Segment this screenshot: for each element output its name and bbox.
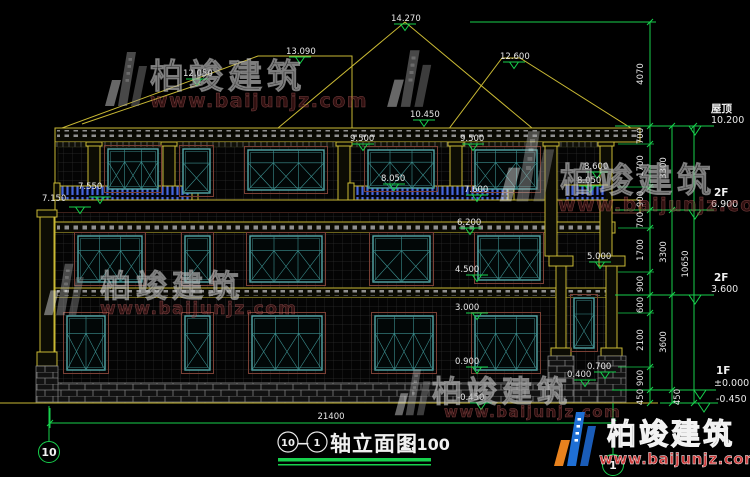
- svg-text:7.600: 7.600: [464, 185, 488, 195]
- level-roof: 屋顶 10.200: [681, 103, 744, 135]
- dim-10650: 10650: [681, 250, 691, 277]
- svg-text:8.050: 8.050: [381, 174, 405, 184]
- cad-elevation-drawing: 4070 700 1700 900 700 1700 900 600 2100 …: [0, 0, 750, 477]
- title-underline-thin: [278, 464, 431, 466]
- watermark-top: 柏竣建筑 www.baijunjz.com: [105, 50, 431, 112]
- svg-text:9.500: 9.500: [350, 134, 374, 144]
- window: [365, 147, 438, 192]
- window: [475, 233, 544, 284]
- dim-3300b: 3300: [659, 241, 669, 263]
- dim-1700b: 1700: [636, 239, 646, 261]
- svg-text:6.200: 6.200: [457, 218, 481, 228]
- window: [571, 295, 598, 352]
- company-brand-text: 柏竣建筑: [607, 417, 735, 451]
- dim-900b: 900: [636, 276, 646, 292]
- svg-text:14.270: 14.270: [391, 14, 421, 24]
- window: [249, 313, 326, 374]
- dim-3600: 3600: [659, 331, 669, 353]
- title-axis-left-num: 10: [281, 438, 295, 449]
- svg-text:9.500: 9.500: [460, 134, 484, 144]
- svg-text:www.baijunjz.com: www.baijunjz.com: [100, 299, 298, 319]
- roof-main: [278, 22, 532, 128]
- axis-left: 10: [39, 406, 60, 463]
- window: [64, 313, 109, 374]
- svg-text:www.baijunjz.com: www.baijunjz.com: [558, 194, 750, 216]
- svg-text:5.000: 5.000: [587, 252, 611, 262]
- window: [247, 233, 326, 286]
- eave-dentils: [57, 130, 638, 137]
- dim-2100: 2100: [636, 329, 646, 351]
- dim-450: 450: [636, 389, 646, 405]
- svg-text:2F: 2F: [714, 272, 728, 284]
- svg-text:7.150: 7.150: [42, 194, 66, 204]
- title-scale: 1:100: [399, 435, 450, 454]
- svg-text:3.600: 3.600: [711, 284, 738, 295]
- window: [105, 146, 162, 193]
- roof-right-wing: [448, 58, 634, 130]
- window: [182, 313, 214, 374]
- dim-600: 600: [636, 297, 646, 313]
- company-url-text: www.baijunjz.com: [599, 450, 750, 468]
- floor-level-markers: 屋顶 10.200 2F 6.900 2F 3.600 1F ±0.000 -0…: [681, 103, 749, 412]
- company-logo-block: 柏竣建筑 www.baijunjz.com: [554, 412, 750, 468]
- wall-strip: [55, 213, 612, 222]
- window: [180, 146, 214, 197]
- window: [372, 313, 437, 374]
- svg-text:www.baijunjz.com: www.baijunjz.com: [150, 90, 368, 112]
- svg-text:10: 10: [41, 446, 57, 459]
- svg-text:±0.000: ±0.000: [714, 378, 749, 389]
- svg-text:13.090: 13.090: [286, 47, 316, 57]
- svg-text:10.200: 10.200: [711, 115, 744, 126]
- cornice-2f-dentils: [57, 224, 613, 231]
- dim-700: 700: [636, 128, 646, 144]
- svg-text:3.000: 3.000: [455, 303, 479, 313]
- dim-450b: 450: [673, 389, 683, 405]
- svg-text:www.baijunjz.com: www.baijunjz.com: [444, 403, 621, 421]
- window: [472, 313, 541, 374]
- title-underline-thick: [278, 458, 431, 462]
- svg-text:12.600: 12.600: [500, 52, 530, 62]
- roof-group: [62, 22, 634, 130]
- svg-text:4.500: 4.500: [455, 265, 479, 275]
- dim-900c: 900: [636, 370, 646, 386]
- drawing-canvas: 4070 700 1700 900 700 1700 900 600 2100 …: [0, 0, 750, 477]
- window: [245, 147, 328, 194]
- svg-text:屋顶: 屋顶: [711, 103, 732, 115]
- title-axis-right-num: 1: [314, 438, 321, 449]
- svg-text:10.450: 10.450: [410, 110, 440, 120]
- svg-text:0.900: 0.900: [455, 357, 479, 367]
- svg-text:7.550: 7.550: [78, 182, 102, 192]
- svg-text:-0.450: -0.450: [716, 394, 747, 405]
- marker-wing-right: 12.600: [500, 52, 530, 69]
- marker-peak: 14.270: [391, 14, 421, 31]
- window: [370, 233, 434, 286]
- dim-21400: 21400: [317, 412, 344, 422]
- marker-eave-center: 10.450: [410, 110, 440, 127]
- svg-text:1F: 1F: [716, 365, 730, 377]
- dim-4070: 4070: [636, 63, 646, 85]
- drawing-title: 10 — 1 轴立面图 1:100: [278, 432, 450, 466]
